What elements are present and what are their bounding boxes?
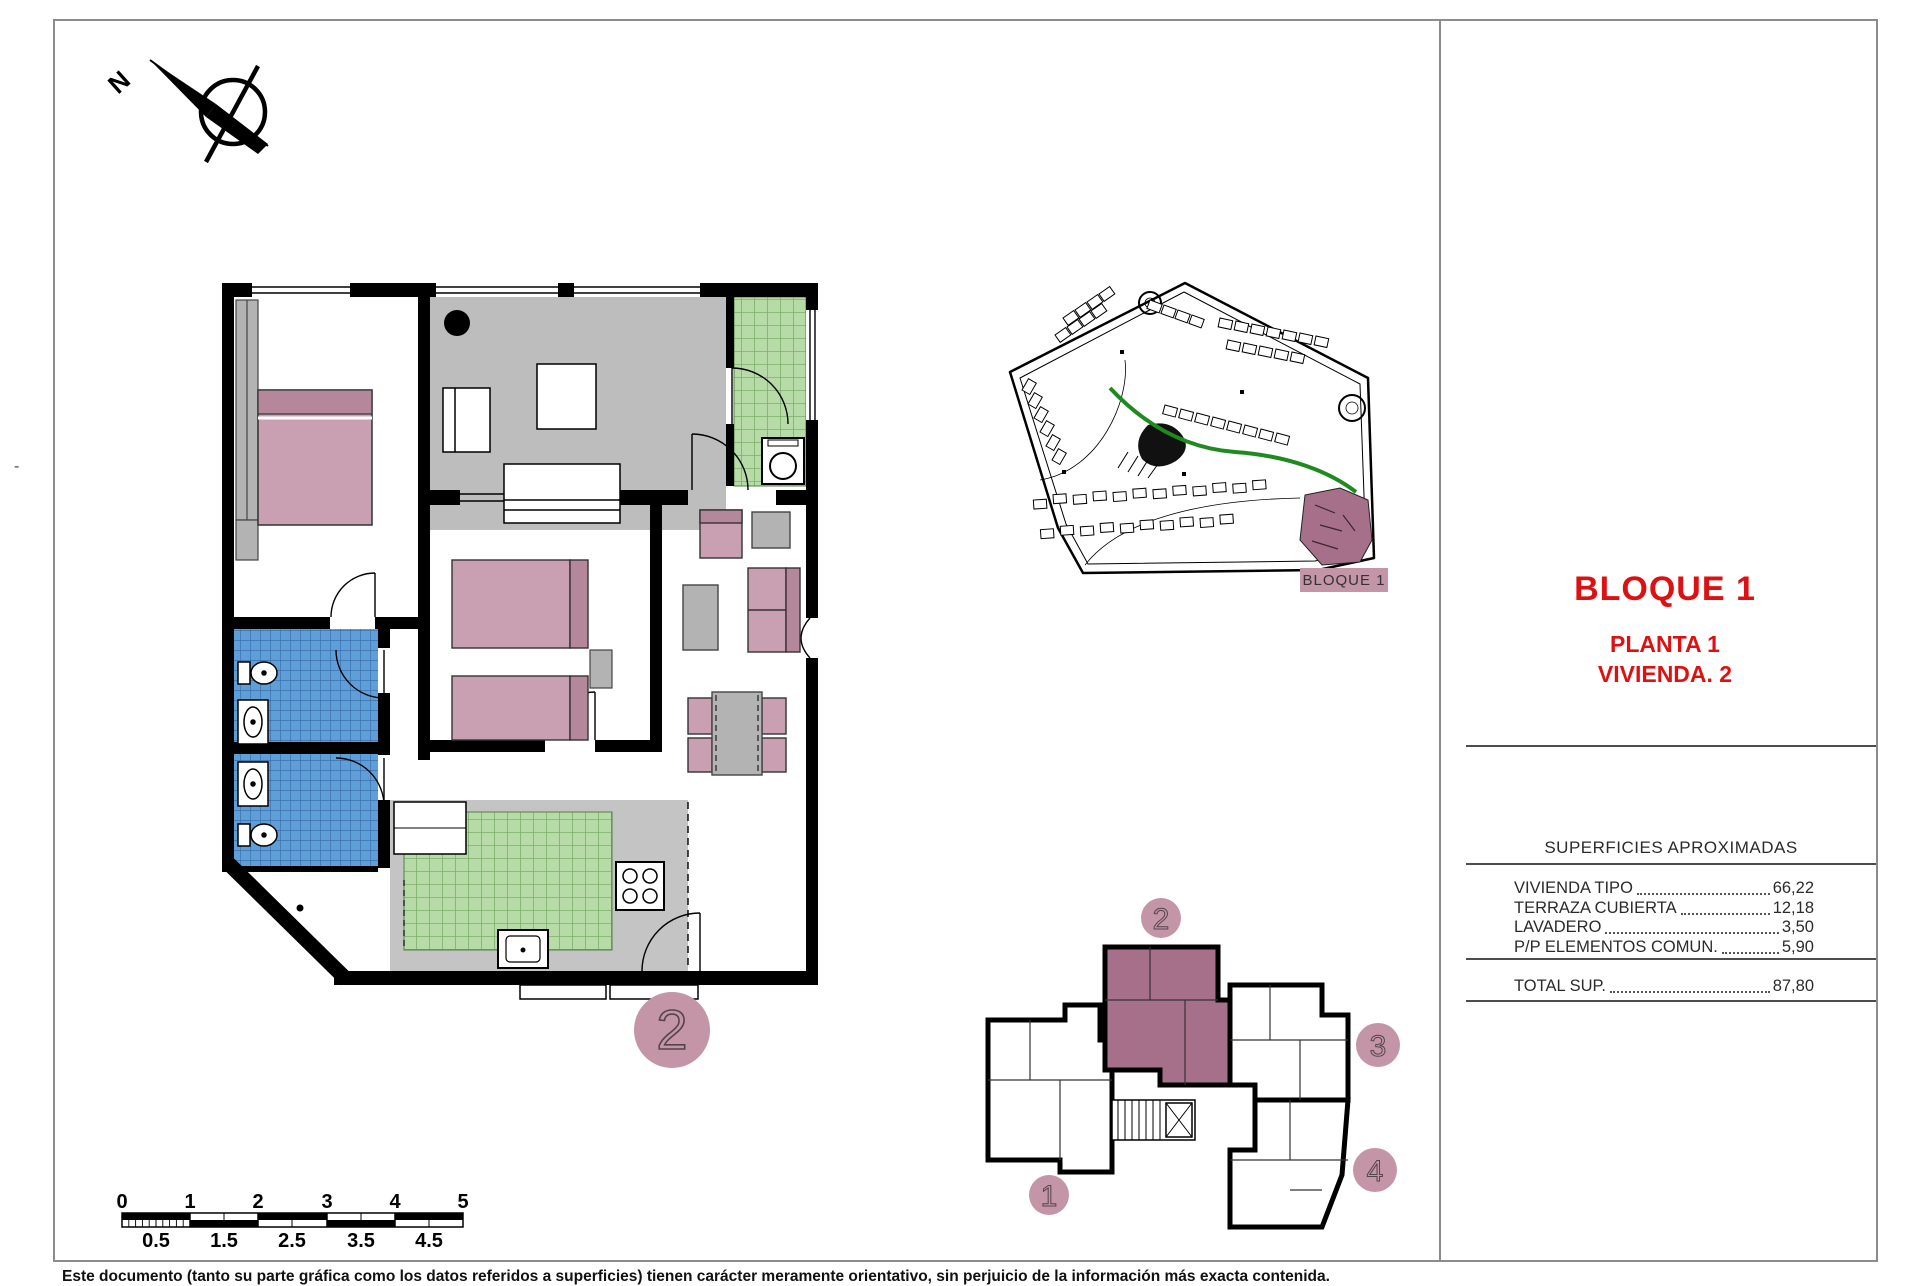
leader-dots [1610, 991, 1770, 993]
table-rule-top [1466, 745, 1876, 747]
table-row: VIVIENDA TIPO66,22 [1514, 878, 1814, 898]
row-value: 5,90 [1782, 938, 1814, 957]
surfaces-table-header: SUPERFICIES APROXIMADAS [1466, 838, 1876, 858]
title-block: BLOQUE 1 PLANTA 1 VIVIENDA. 2 [1540, 570, 1790, 688]
floor-title: PLANTA 1 [1540, 631, 1790, 658]
key-badge-2: 2 [1153, 903, 1170, 936]
leader-dots [1722, 952, 1779, 954]
scale-minor-labels: 0.5 1.5 2.5 3.5 4.5 [142, 1230, 443, 1249]
unit-number-badge: 2 [634, 992, 710, 1068]
key-plan-unit-2-highlighted [1105, 947, 1230, 1085]
row-label: P/P ELEMENTOS COMUN. [1514, 938, 1718, 957]
total-value: 87,80 [1773, 977, 1814, 996]
dwelling-title: VIVIENDA. 2 [1540, 661, 1790, 688]
disclaimer-text: Este documento (tanto su parte gráfica c… [62, 1268, 1862, 1286]
table-row: TERRAZA CUBIERTA12,18 [1514, 898, 1814, 918]
key-plan-unit-1 [988, 1005, 1112, 1172]
unit-number: 2 [656, 998, 687, 1061]
table-row: P/P ELEMENTOS COMUN.5,90 [1514, 937, 1814, 957]
scale-bar: 0 1 2 3 4 5 0.5 1.5 2.5 3.5 4.5 [105, 1183, 475, 1249]
table-rule-above-total [1466, 958, 1876, 960]
leader-dots [1605, 932, 1778, 934]
site-block-label-text: BLOQUE 1 [1302, 572, 1385, 589]
key-badge-4: 4 [1367, 1155, 1384, 1188]
site-block-label: BLOQUE 1 [1300, 568, 1388, 592]
row-value: 66,22 [1773, 879, 1814, 898]
svg-text:1.5: 1.5 [210, 1230, 238, 1249]
washing-machine [762, 438, 804, 484]
margin-mark: - [14, 458, 19, 476]
svg-text:5: 5 [457, 1191, 468, 1213]
svg-text:0.5: 0.5 [142, 1230, 170, 1249]
svg-text:1: 1 [184, 1191, 195, 1213]
floor-plan: 2 [215, 278, 825, 1078]
key-badge-3: 3 [1370, 1030, 1387, 1063]
row-label: TERRAZA CUBIERTA [1514, 899, 1677, 918]
surfaces-table: VIVIENDA TIPO66,22 TERRAZA CUBIERTA12,18… [1514, 878, 1814, 957]
svg-text:3: 3 [321, 1191, 332, 1213]
svg-text:2.5: 2.5 [278, 1230, 306, 1249]
compass-needle-tip [150, 60, 216, 117]
key-plan-unit-3 [1230, 985, 1348, 1100]
svg-text:4: 4 [389, 1191, 401, 1213]
row-value: 12,18 [1773, 899, 1814, 918]
leader-dots [1681, 913, 1770, 915]
key-plan: 1 2 3 4 [975, 895, 1405, 1250]
compass-n-label: N [102, 65, 136, 100]
table-rule-bottom [1466, 1000, 1876, 1002]
key-plan-core [1112, 1100, 1195, 1140]
svg-text:0: 0 [116, 1191, 127, 1213]
site-plan: BLOQUE 1 [990, 270, 1400, 605]
svg-text:2: 2 [252, 1191, 263, 1213]
table-rule-under-header [1466, 863, 1876, 865]
scale-major-labels: 0 1 2 3 4 5 [116, 1191, 468, 1213]
scale-bar-strip [122, 1213, 463, 1227]
row-label: VIVIENDA TIPO [1514, 879, 1633, 898]
row-label: LAVADERO [1514, 918, 1601, 937]
key-plan-unit-4 [1230, 1100, 1348, 1227]
table-row: LAVADERO3,50 [1514, 918, 1814, 938]
key-badge-1: 1 [1041, 1180, 1058, 1213]
svg-text:4.5: 4.5 [415, 1230, 443, 1249]
leader-dots [1637, 893, 1770, 895]
row-value: 3,50 [1782, 918, 1814, 937]
block-title: BLOQUE 1 [1540, 570, 1790, 609]
total-label: TOTAL SUP. [1514, 977, 1606, 996]
panel-divider [1439, 19, 1441, 1260]
svg-text:3.5: 3.5 [347, 1230, 375, 1249]
total-row: TOTAL SUP.87,80 [1514, 976, 1814, 996]
plan-sheet: { "titles": { "bloque": "BLOQUE 1", "pla… [0, 0, 1920, 1280]
compass-north-arrow: N [100, 30, 300, 180]
surfaces-table-total: TOTAL SUP.87,80 [1514, 976, 1814, 996]
